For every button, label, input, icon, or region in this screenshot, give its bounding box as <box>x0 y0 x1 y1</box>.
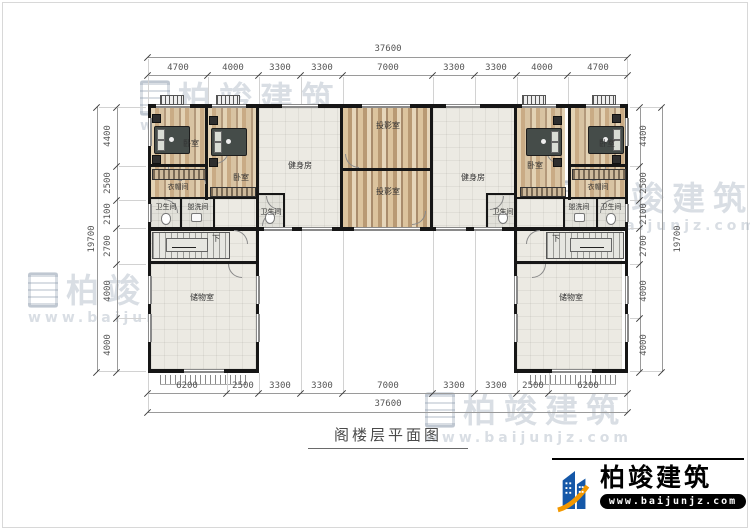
window <box>514 314 518 342</box>
toilet <box>606 213 616 225</box>
wall <box>568 104 571 200</box>
room-storage-right <box>517 264 622 369</box>
bed <box>211 128 247 156</box>
wardrobe <box>572 169 626 180</box>
window <box>436 227 466 231</box>
window <box>446 104 480 108</box>
wall <box>205 104 208 200</box>
dim-bottom-seg-8: 6200 <box>558 381 618 391</box>
dim-right-seg-3: 2700 <box>639 226 649 266</box>
dim-left-total: 19700 <box>87 209 97 269</box>
wall <box>256 193 284 195</box>
nightstand <box>152 155 161 164</box>
dim-left-seg-0: 4400 <box>103 116 113 156</box>
dim-bottom-seg-7: 2500 <box>503 381 563 391</box>
bedroom-label: 卧室 <box>520 160 550 171</box>
window <box>148 314 152 342</box>
window <box>148 276 152 304</box>
bathroom-label: 卫生间 <box>150 202 182 212</box>
ac-unit <box>216 95 240 105</box>
window <box>282 104 318 108</box>
wall-projection-divider <box>343 168 430 171</box>
nightstand <box>612 114 621 123</box>
storage-label: 储物室 <box>172 292 232 303</box>
dim-right-seg-0: 4400 <box>639 116 649 156</box>
bedroom-label: 卧室 <box>176 138 206 149</box>
dim-line-bottom-total <box>148 412 628 413</box>
window <box>302 227 332 231</box>
toilet <box>161 213 171 225</box>
stair-rail-right <box>570 238 612 252</box>
floorplan-page: { "title": "阁楼层平面图", "rooms": { "bedroom… <box>0 0 750 530</box>
dim-bottom-seg-3: 3300 <box>292 381 352 391</box>
window <box>256 314 260 342</box>
hall-right <box>517 199 563 227</box>
dim-bottom-seg-4: 7000 <box>358 381 418 391</box>
dim-top-seg-0: 4700 <box>148 63 208 73</box>
stairs-down-label: 下 <box>212 233 220 244</box>
window <box>625 314 629 342</box>
dim-top-seg-4: 7000 <box>358 63 418 73</box>
bedroom-label: 卧室 <box>592 138 622 149</box>
dim-line-top-segments <box>148 75 628 76</box>
wall <box>486 193 488 230</box>
dim-left-seg-5: 4000 <box>103 325 113 365</box>
dim-line-right-total <box>662 107 663 372</box>
window <box>256 276 260 304</box>
nightstand <box>553 116 562 125</box>
wardrobe <box>152 169 206 180</box>
dim-top-seg-8: 4700 <box>568 63 628 73</box>
wall <box>430 104 433 231</box>
stairs-down-label: 下 <box>552 233 560 244</box>
brand-logo: 柏竣建筑 www.baijunjz.com <box>556 464 746 520</box>
storage-label: 储物室 <box>541 292 601 303</box>
dim-top-total: 37600 <box>338 44 438 54</box>
dim-right-total: 19700 <box>673 209 683 269</box>
dim-line-top-total <box>148 57 628 58</box>
hall-left <box>215 199 256 227</box>
dim-top-seg-3: 3300 <box>292 63 352 73</box>
window <box>184 369 224 373</box>
dim-right-seg-4: 4000 <box>639 271 649 311</box>
washroom-label: 盥洗间 <box>183 202 213 212</box>
bed <box>526 128 562 156</box>
bathroom-label: 卫生间 <box>257 207 285 217</box>
drawing-title: 阁楼层平面图 <box>308 424 468 449</box>
dim-bottom-total: 37600 <box>338 399 438 409</box>
dim-line-left-total <box>97 107 98 372</box>
cloakroom-label: 衣帽间 <box>156 182 200 192</box>
watermark-logo-icon <box>28 272 58 308</box>
wardrobe <box>520 187 566 197</box>
dim-left-seg-3: 2700 <box>103 226 113 266</box>
logo-divider-line <box>552 458 744 460</box>
projection-label: 投影室 <box>358 120 418 131</box>
window <box>514 276 518 304</box>
ac-unit <box>592 95 616 105</box>
window <box>625 118 629 146</box>
bedroom-label: 卧室 <box>226 172 256 183</box>
stair-arrow-right <box>580 247 604 248</box>
wall <box>148 261 259 264</box>
wall <box>486 193 514 195</box>
window <box>552 369 592 373</box>
nightstand <box>553 158 562 167</box>
window <box>474 227 502 231</box>
projection-label: 投影室 <box>358 186 418 197</box>
nightstand <box>209 116 218 125</box>
wardrobe <box>210 187 256 197</box>
cloakroom-label: 衣帽间 <box>576 182 620 192</box>
window <box>264 227 292 231</box>
dim-line-bottom-segments <box>148 393 628 394</box>
wall <box>340 104 343 231</box>
watermark-logo-icon <box>425 392 455 428</box>
nightstand <box>612 155 621 164</box>
nightstand <box>152 114 161 123</box>
nightstand <box>209 158 218 167</box>
washroom-label: 盥洗间 <box>564 202 594 212</box>
gym-label: 健身房 <box>443 172 503 183</box>
dim-top-seg-7: 4000 <box>512 63 572 73</box>
stair-arrow-left <box>172 247 196 248</box>
brand-building-icon <box>556 464 594 514</box>
window <box>362 104 410 108</box>
sink <box>191 213 202 222</box>
ac-unit <box>522 95 546 105</box>
brand-url: www.baijunjz.com <box>600 494 746 509</box>
window <box>354 227 420 231</box>
bathroom-label: 卫生间 <box>489 207 517 217</box>
window <box>625 276 629 304</box>
gym-label: 健身房 <box>270 160 330 171</box>
wall <box>213 197 215 230</box>
dim-line-left-segments <box>117 107 118 372</box>
bathroom-label: 卫生间 <box>595 202 627 212</box>
ac-unit <box>160 95 184 105</box>
dim-left-seg-4: 4000 <box>103 271 113 311</box>
stair-rail-left <box>166 238 208 252</box>
dim-right-seg-5: 4000 <box>639 325 649 365</box>
brand-name: 柏竣建筑 <box>600 464 746 492</box>
sink <box>574 213 585 222</box>
dim-bottom-seg-0: 6200 <box>157 381 217 391</box>
room-storage-left <box>151 264 256 369</box>
